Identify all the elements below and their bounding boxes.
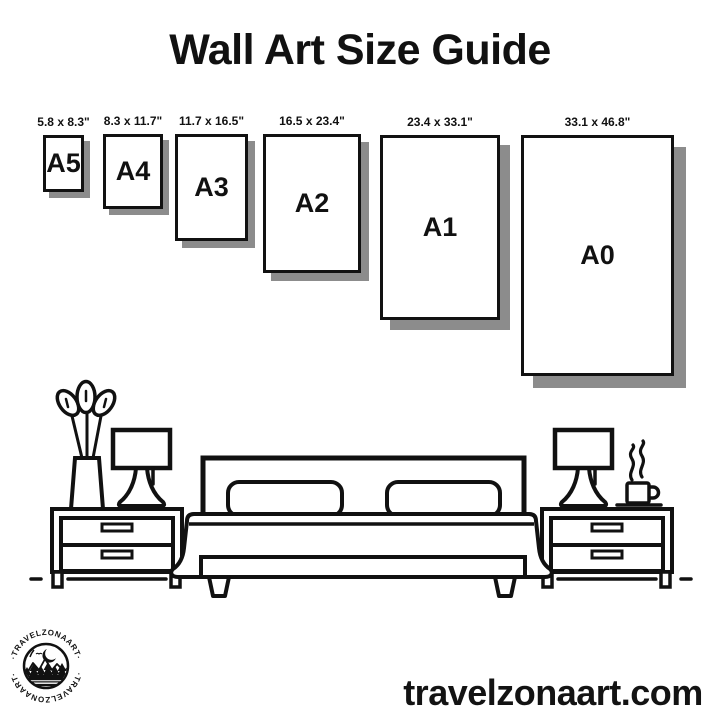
coffee-cup-steam-icon	[617, 441, 661, 505]
wall-art-size-guide-poster: Wall Art Size Guide 5.8 x 8.3" A5 8.3 x …	[0, 0, 720, 720]
table-lamp-left-icon	[113, 430, 170, 506]
nightstand-left-icon	[52, 509, 182, 587]
bed-icon	[171, 458, 552, 596]
nightstand-right-icon	[542, 509, 672, 587]
table-lamp-right-icon	[555, 430, 612, 506]
website-url: travelzonaart.com	[403, 672, 703, 714]
vase-plant-icon	[53, 382, 119, 510]
bedroom-illustration: ·TRAVELZONAART· ·TRAVELZONAART·	[0, 0, 720, 720]
brand-logo: ·TRAVELZONAART· ·TRAVELZONAART·	[9, 628, 83, 704]
